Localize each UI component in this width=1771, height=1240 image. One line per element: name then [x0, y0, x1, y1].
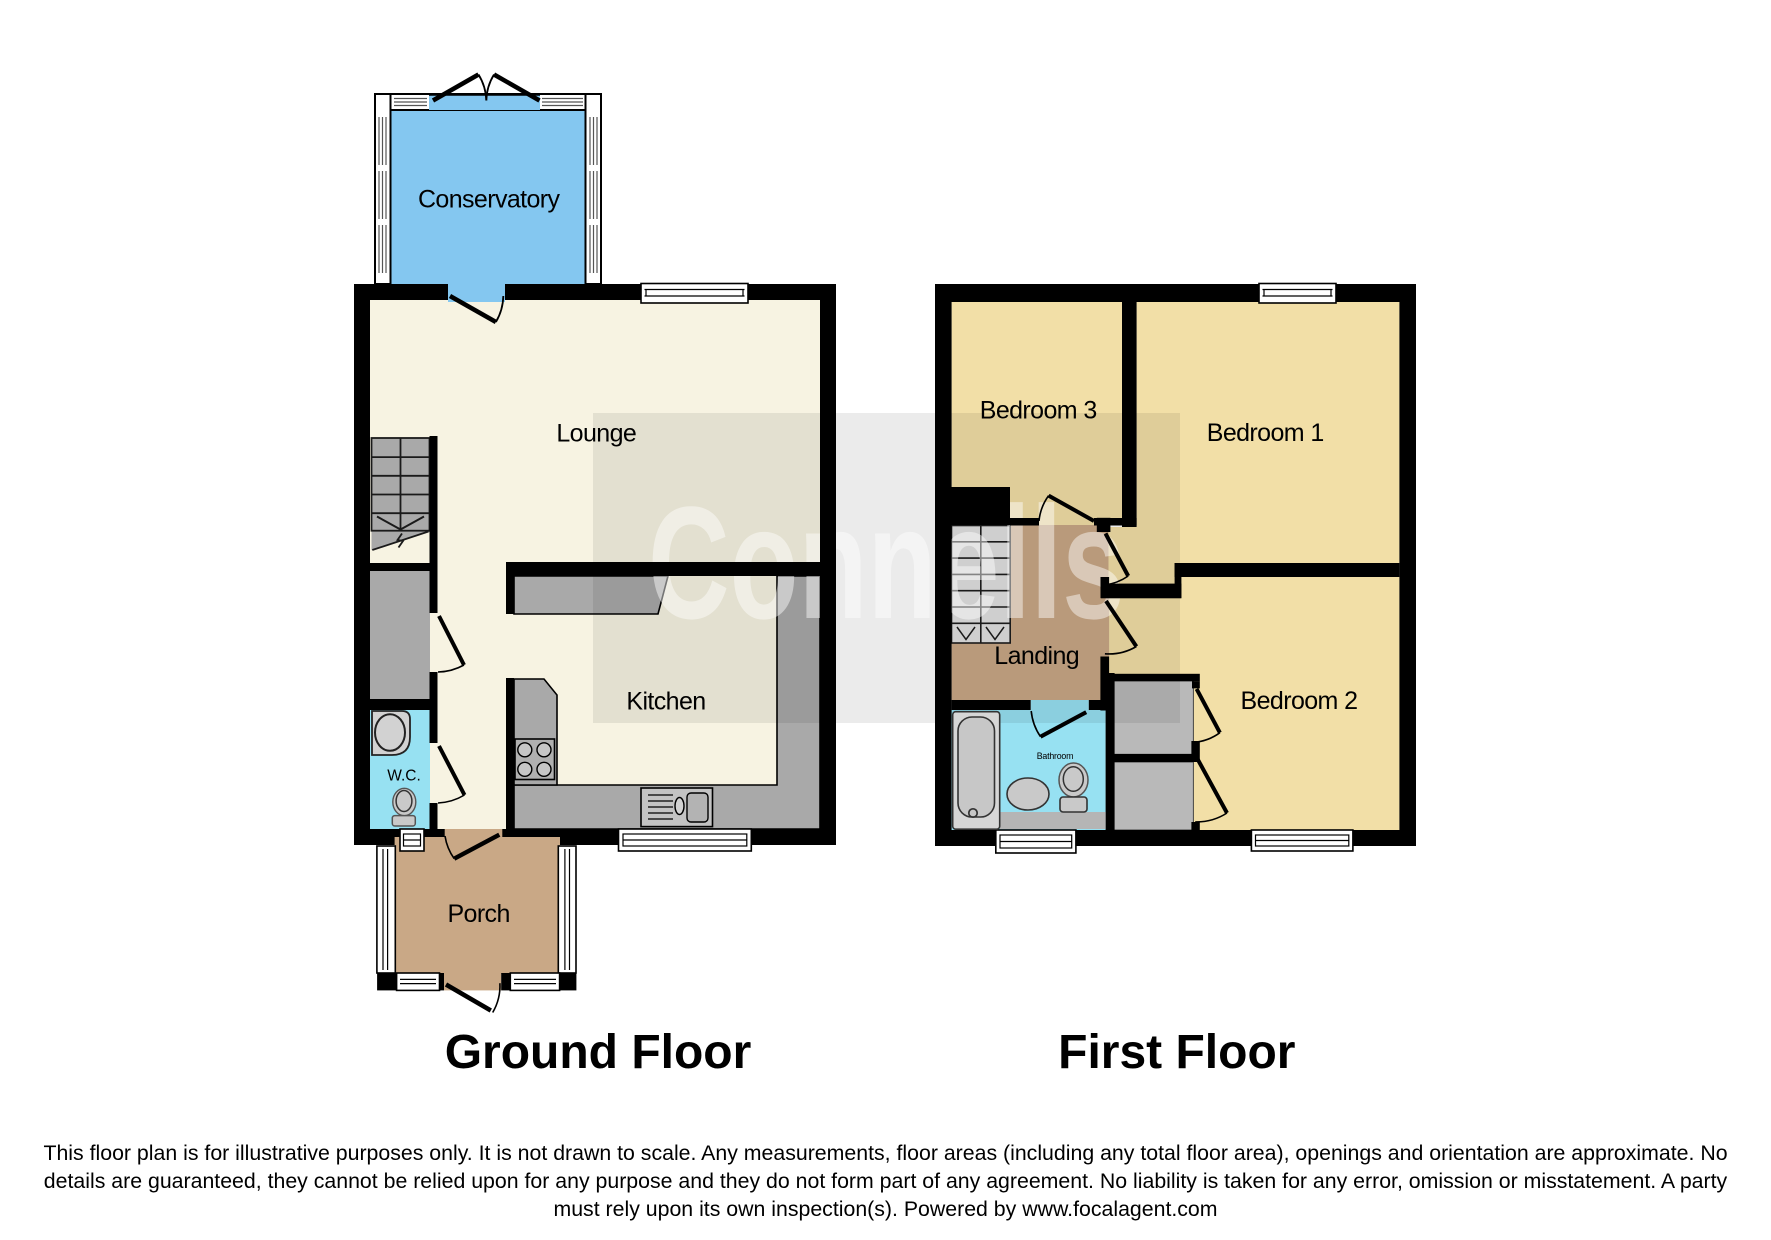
svg-text:W.C.: W.C. — [387, 768, 421, 785]
svg-text:Kitchen: Kitchen — [626, 688, 705, 716]
svg-text:This floor plan is for illustr: This floor plan is for illustrative purp… — [43, 1141, 1727, 1165]
svg-text:Lounge: Lounge — [556, 420, 636, 448]
svg-text:Bedroom 2: Bedroom 2 — [1241, 687, 1358, 715]
svg-text:details are guaranteed, they c: details are guaranteed, they cannot be r… — [44, 1169, 1728, 1193]
svg-text:Bathroom: Bathroom — [1037, 751, 1074, 761]
svg-text:Conservatory: Conservatory — [418, 186, 561, 214]
svg-text:Bedroom 3: Bedroom 3 — [980, 397, 1097, 425]
svg-text:must rely upon its own inspect: must rely upon its own inspection(s). Po… — [553, 1197, 1217, 1221]
svg-text:Landing: Landing — [994, 642, 1079, 670]
svg-text:First Floor: First Floor — [1058, 1026, 1295, 1079]
svg-text:Ground Floor: Ground Floor — [445, 1026, 752, 1079]
svg-text:Bedroom 1: Bedroom 1 — [1207, 419, 1324, 447]
svg-text:Porch: Porch — [447, 900, 509, 928]
